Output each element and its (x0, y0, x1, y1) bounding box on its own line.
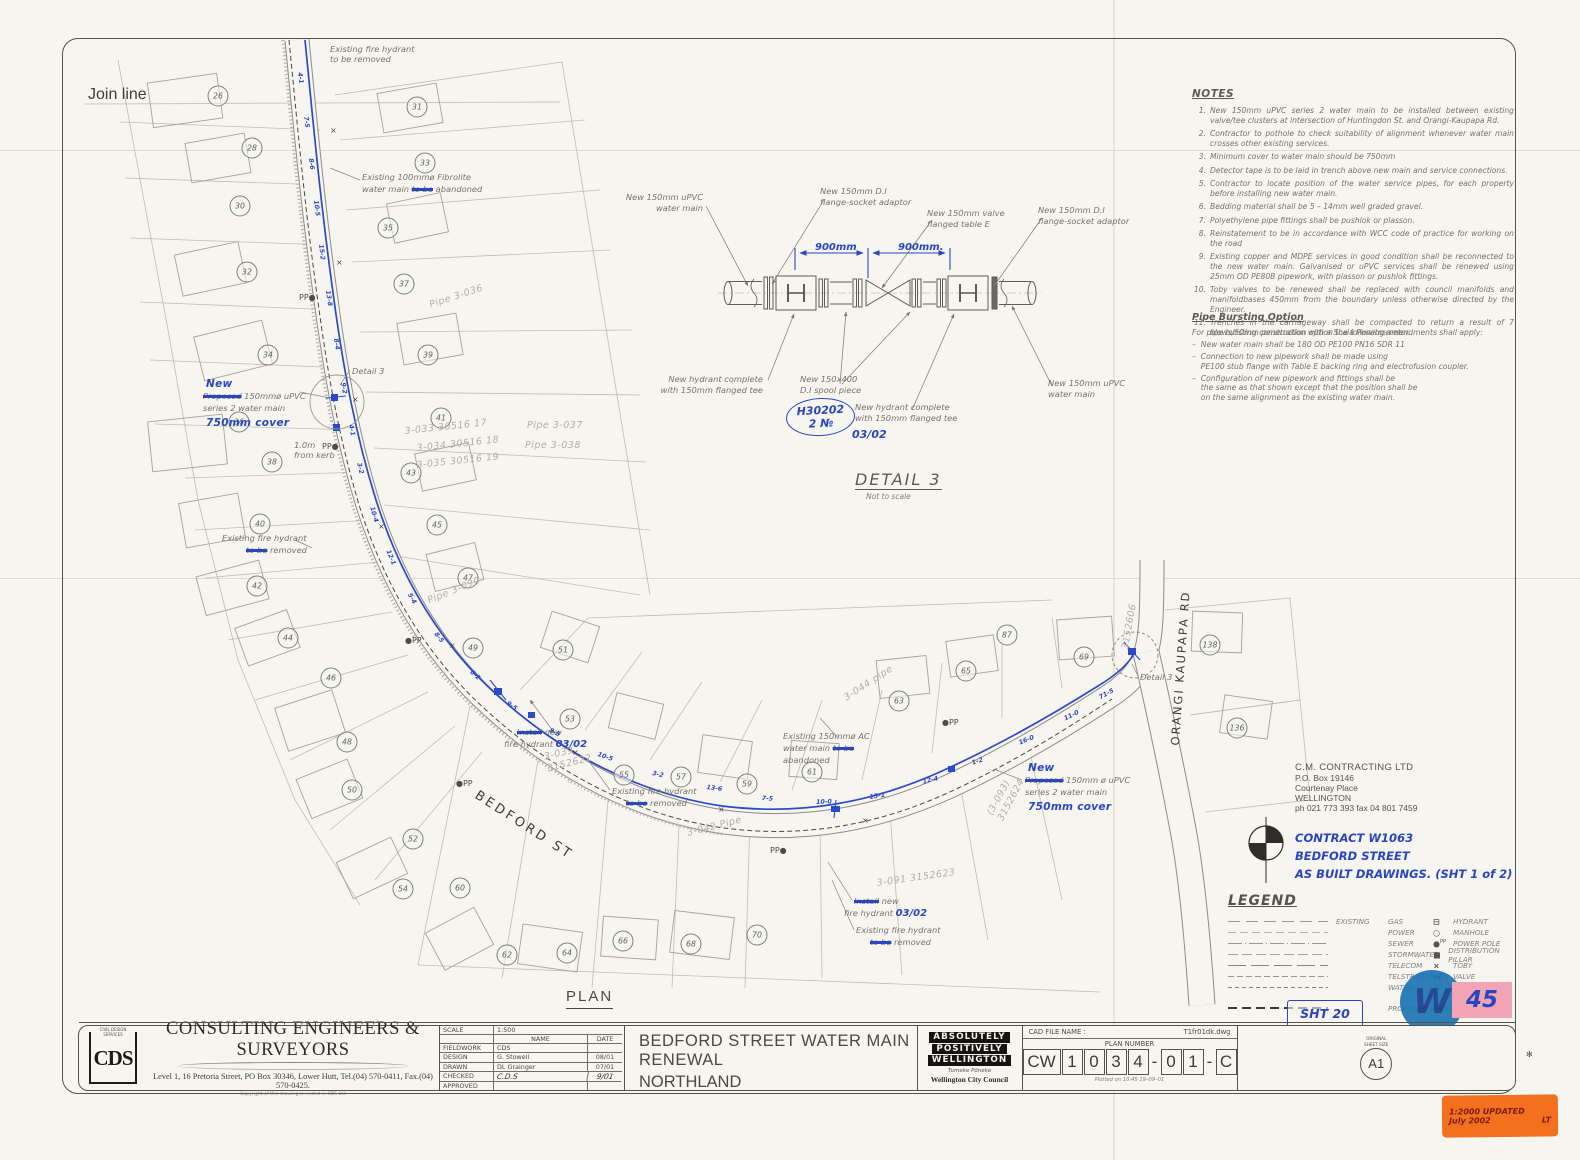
note-item: 7. Polyethylene pipe fittings shall be p… (1192, 216, 1514, 226)
plan-annotation: 3-042 Pipe (686, 814, 743, 839)
lot-number: 62 (497, 945, 518, 966)
utility-mark: × (449, 641, 456, 651)
lot-number: 54 (393, 879, 414, 900)
chainage-tick: 13-8 (323, 290, 333, 307)
note-item: 9. Existing copper and MDPE services in … (1192, 252, 1514, 282)
chainage-tick: 4-1 (295, 72, 304, 84)
chainage-tick: 7-5 (301, 116, 310, 128)
lot-number: 64 (557, 943, 578, 964)
contractor-street: Courtenay Place (1295, 783, 1515, 793)
chainage-tick: 9-5 (504, 700, 518, 713)
scale-label: SCALE (440, 1026, 494, 1035)
lot-number: 51 (553, 640, 574, 661)
detail3-handwritten: H30202 2 № (785, 396, 856, 438)
note-item: 4. Detector tape is to be laid in trench… (1192, 166, 1514, 176)
drawing-title-line1: BEDFORD STREET WATER MAIN RENEWAL (639, 1032, 917, 1070)
chainage-tick: 8-4 (331, 338, 341, 350)
legend-symbol-item: ⊟ HYDRANT (1433, 916, 1508, 927)
company-section: CIVIL DESIGN SERVICES CDS CONSULTING ENG… (79, 1026, 440, 1090)
note-item: 3. Minimum cover to water main should be… (1192, 152, 1514, 162)
detail3-label: New 150mm D.I flange-socket adaptor (1038, 205, 1129, 227)
detail3-handwritten: 900mm (815, 242, 857, 253)
lot-number: 87 (997, 625, 1018, 646)
plan-annotation: to be removed (246, 545, 307, 555)
legend-line-sample (1228, 965, 1328, 966)
detail3-label: New 150mm uPVC water main (626, 192, 703, 214)
chainage-tick: 3-2 (354, 462, 364, 475)
detail3-label: New hydrant complete with 150mm flanged … (855, 402, 957, 424)
lot-number: 38 (262, 452, 283, 473)
lot-number: 28 (242, 138, 263, 159)
copyright-note: Copyright of this drawing is vested in C… (147, 1092, 439, 1097)
plan-annotation: Pipe 3-038 (525, 440, 581, 452)
lot-number: 70 (747, 925, 768, 946)
detail3-label: New 150mm valve flanged table E (927, 208, 1005, 230)
lot-number: 44 (278, 628, 299, 649)
lot-number: 57 (671, 767, 692, 788)
plan-annotation: water main to be (783, 743, 854, 753)
plan-annotation: Proposed 150mmø uPVC (203, 391, 306, 401)
name-header: NAME (494, 1035, 588, 1044)
legend-symbol-item: ■ DISTRIBUTION PILLAR (1433, 949, 1508, 960)
legend-line-sample (1228, 954, 1328, 955)
lot-number: 31 (407, 97, 428, 118)
detail3-title: DETAIL 3 (855, 470, 942, 490)
plan-annotation: Detail 3 (1140, 672, 1172, 682)
lot-number: 65 (956, 661, 977, 682)
plan-annotation: 3-044 pipe (842, 663, 896, 704)
note-item: 10. Toby valves to be renewed shall be r… (1192, 285, 1514, 315)
chainage-tick: 10-0 (816, 798, 832, 806)
lot-number: 52 (403, 829, 424, 850)
plan-number-char: 0 (1084, 1049, 1105, 1075)
drawing-sheet: 2628303234363840424446485052546062646668… (0, 0, 1580, 1160)
detail3-label: New hydrant complete with 150mm flanged … (661, 374, 763, 396)
plan-number-char: 0 (1161, 1049, 1182, 1075)
chainage-tick: 4-1 (346, 424, 356, 437)
notes-list: 1. New 150mm uPVC series 2 water main to… (1192, 106, 1514, 338)
checked-signature: C.D.S (493, 1072, 589, 1082)
lot-number: 66 (613, 931, 634, 952)
contractor-city: WELLINGTON (1295, 793, 1515, 803)
plan-annotation: to be removed (626, 798, 687, 808)
lot-number: 34 (258, 345, 279, 366)
plan-annotation: Existing 150mmø AC (783, 731, 870, 741)
lot-number: 138 (1200, 635, 1221, 656)
notes-panel: NOTES 1. New 150mm uPVC series 2 water m… (1192, 88, 1514, 342)
plan-number-char: 3 (1106, 1049, 1127, 1075)
pipe-bursting-item: – New water main shall be 180 OD PE100 P… (1192, 340, 1514, 350)
company-name: CONSULTING ENGINEERS & SURVEYORS (147, 1019, 439, 1061)
detail3-label: New 150mm uPVC water main (1048, 378, 1125, 400)
chainage-tick: 13-6 (706, 784, 723, 794)
plan-annotation: Proposed 150mm ø uPVC (1025, 775, 1130, 785)
detail3-handwritten: 900mm. (898, 242, 944, 253)
plan-annotation: Existing fire hydrant to be removed (330, 44, 414, 65)
plan-annotation: series 2 water main (203, 403, 285, 413)
notes-title: NOTES (1192, 88, 1514, 100)
note-item: 1. New 150mm uPVC series 2 water main to… (1192, 106, 1514, 126)
chainage-tick: 1-2 (971, 756, 984, 767)
plan-annotation: water main to be abandoned (362, 184, 482, 194)
chainage-tick: 6-2 (468, 669, 482, 682)
pipe-bursting-list: – New water main shall be 180 OD PE100 P… (1192, 340, 1514, 403)
note-item: 2. Contractor to pothole to check suitab… (1192, 129, 1514, 149)
plan-annotation: New (206, 378, 233, 391)
contractor-pobox: P.O. Box 19146 (1295, 773, 1515, 783)
lot-number: 45 (427, 515, 448, 536)
lot-number: 42 (247, 576, 268, 597)
plan-number-section: CAD FILE NAME : T1fr01dk.dwg PLAN NUMBER… (1023, 1026, 1238, 1090)
title-block: CIVIL DESIGN SERVICES CDS CONSULTING ENG… (78, 1025, 1516, 1091)
chainage-tick: 5-4 (405, 592, 418, 606)
utility-mark: × (572, 748, 579, 758)
plan-annotation: Existing 100mmø Fibrolite (362, 172, 471, 182)
plan-annotation: Install new (854, 896, 899, 906)
chainage-tick: 7-5 (761, 795, 773, 804)
chainage-tick: 12-1 (384, 549, 397, 567)
chainage-tick: 16-0 (1018, 734, 1036, 747)
plan-annotation: fire hydrant 03/02 (844, 908, 927, 921)
cad-file-label: CAD FILE NAME : (1029, 1028, 1086, 1036)
utility-mark: PP● (322, 442, 339, 452)
legend-title: LEGEND (1228, 893, 1508, 909)
plan-annotation: 3152606 (1120, 603, 1140, 650)
utility-mark: × (352, 395, 359, 405)
plan-annotation: Pipe 3-036 (428, 283, 485, 312)
pipe-bursting-title: Pipe Bursting Option (1192, 312, 1514, 323)
utility-mark: × (718, 805, 725, 815)
lot-number: 26 (208, 86, 229, 107)
note-item: 8. Reinstatement to be in accordance wit… (1192, 229, 1514, 249)
chainage-tick: 11-0 (1063, 709, 1081, 723)
plan-annotation: series 2 water main (1025, 787, 1107, 797)
plan-annotation: Existing fire hydrant (856, 925, 940, 935)
utility-mark: ●PP (405, 636, 422, 646)
plan-annotation: Existing fire hydrant (222, 533, 306, 543)
pipe-bursting-item: – Connection to new pipework shall be ma… (1192, 352, 1514, 372)
plan-annotation: abandoned (783, 755, 830, 765)
lot-number: 55 (614, 765, 635, 786)
detail3-subtitle: Not to scale (866, 492, 911, 501)
utility-mark: × (378, 522, 385, 532)
lot-number: 63 (889, 691, 910, 712)
contractor-name: C.M. CONTRACTING LTD (1295, 762, 1515, 773)
lot-number: 50 (342, 780, 363, 801)
plan-number-label: PLAN NUMBER (1023, 1040, 1237, 1048)
plan-annotation: PLAN (566, 988, 613, 1009)
street-label: BEDFORD ST (471, 788, 576, 864)
date-header: DATE (588, 1035, 622, 1044)
highlight-45: 45 (1452, 982, 1512, 1018)
lot-number: 39 (418, 345, 439, 366)
lot-number: 35 (378, 218, 399, 239)
lot-number: 30 (230, 196, 251, 217)
chainage-tick: 10-4 (367, 506, 379, 523)
plan-annotation: to be removed (870, 937, 931, 947)
utility-mark: ●PP (942, 718, 959, 728)
lot-number: 33 (415, 153, 436, 174)
utility-mark: × (862, 816, 869, 826)
street-label: ORANGI KAUPAPA RD (1168, 590, 1193, 746)
lot-number: 40 (250, 514, 271, 535)
detail3-handwritten: 03/02 (852, 428, 887, 441)
chainage-tick: 10-5 (311, 200, 321, 217)
contract-handwritten-note: CONTRACT W1063 BEDFORD STREET AS BUILT D… (1295, 830, 1512, 883)
legend-line-sample (1228, 932, 1328, 933)
chainage-tick: 3-2 (651, 770, 664, 780)
plan-annotation: 750mm cover (1028, 801, 1111, 814)
plan-annotation: 3-035 30516 19 (416, 451, 500, 471)
scale-value: 1:500 (494, 1026, 622, 1035)
contractor-stamp: C.M. CONTRACTING LTD P.O. Box 19146 Cour… (1295, 762, 1515, 813)
plan-number-char: - (1205, 1050, 1215, 1074)
utility-mark: × (336, 258, 343, 268)
contractor-phone: ph 021 773 393 fax 04 801 7459 (1295, 803, 1515, 813)
chainage-tick: 10-5 (596, 751, 614, 764)
plan-annotation: 3-091 3152623 (876, 867, 956, 890)
lot-number: 68 (681, 934, 702, 955)
lot-number: 69 (1074, 647, 1095, 668)
plan-number-char: CW (1023, 1049, 1061, 1075)
chainage-tick: 12-4 (922, 775, 939, 786)
legend-line-sample (1228, 943, 1328, 944)
sheet-size-section: ORIGINAL SHEET SIZE A1 (1238, 1026, 1516, 1090)
plan-annotation: Detail 3 (352, 366, 384, 376)
plan-annotation: 750mm cover (206, 417, 289, 430)
detail3-label: New 150mm D.I flange-socket adaptor (820, 186, 911, 208)
sheet-size-badge: A1 (1360, 1048, 1392, 1080)
plan-number-char: 1 (1183, 1049, 1204, 1075)
chainage-tick: 71-5 (1098, 687, 1116, 702)
detail3-label: New 150x400 D.I spool piece (800, 374, 861, 396)
pipe-bursting-item: – Configuration of new pipework and fitt… (1192, 374, 1514, 404)
lot-number: 37 (394, 274, 415, 295)
company-address: Level 1, 16 Pretoria Street, PO Box 3034… (147, 1072, 439, 1090)
chainage-tick: 8-5 (432, 631, 445, 645)
logo-swoosh (177, 1062, 409, 1070)
note-item: 5. Contractor to locate position of the … (1192, 179, 1514, 199)
utility-mark: ●PP (456, 779, 473, 789)
plan-annotation: Pipe 3-090 (426, 575, 482, 607)
lot-number: 59 (737, 774, 758, 795)
chainage-tick: 15-1 (869, 792, 886, 802)
chainage-tick: 8-6 (306, 158, 315, 170)
utility-mark: PP● (770, 846, 787, 856)
drawing-title: BEDFORD STREET WATER MAIN RENEWAL NORTHL… (625, 1026, 918, 1090)
lot-number: 60 (450, 878, 471, 899)
chainage-tick: 9-2 (338, 382, 348, 395)
legend-existing-label: EXISTING (1336, 917, 1370, 926)
legend-symbol-item: ○ MANHOLE (1433, 927, 1508, 938)
cad-file-name: T1fr01dk.dwg (1184, 1028, 1231, 1036)
note-item: 6. Bedding material shall be 5 – 14mm we… (1192, 202, 1514, 212)
plan-number: CW 1 0 3 4 - 0 1 - C (1023, 1049, 1237, 1075)
scale-table: SCALE 1:500 NAME DATE FIELDWORK CDS DESI… (440, 1026, 625, 1090)
pipe-bursting-panel: Pipe Bursting Option For pipe bursting c… (1192, 312, 1514, 405)
plan-number-char: - (1150, 1050, 1160, 1074)
lot-number: 32 (237, 262, 258, 283)
legend-line-sample (1228, 921, 1328, 922)
plan-number-char: 1 (1062, 1049, 1083, 1075)
utility-mark: PP● (299, 293, 316, 303)
lot-number: 53 (560, 709, 581, 730)
cds-logo: CIVIL DESIGN SERVICES CDS (89, 1032, 137, 1084)
council-logo: ABSOLUTELY POSITIVELY WELLINGTON Tumeke … (918, 1026, 1023, 1090)
lot-number: 48 (337, 732, 358, 753)
utility-mark: × (330, 126, 337, 136)
legend-line-sample (1228, 987, 1328, 988)
lot-number: 136 (1227, 718, 1248, 739)
lot-number: 46 (321, 668, 342, 689)
plotted-stamp: Plotted on 10:45 19–09–01 (1023, 1077, 1237, 1083)
pipe-bursting-intro: For pipe bursting construction option th… (1192, 328, 1514, 337)
drawing-title-line2: NORTHLAND (639, 1073, 917, 1092)
plan-annotation: Join line (88, 85, 147, 105)
plan-annotation: New (1028, 762, 1055, 775)
sticky-note: 1:2000 UPDATED July 2002 LT (1442, 1094, 1558, 1137)
plan-annotation: ✻ (1526, 1050, 1533, 1060)
plan-annotation: Pipe 3-037 (527, 420, 583, 432)
legend-line-sample (1228, 976, 1328, 977)
plan-number-char: C (1216, 1049, 1237, 1075)
plan-number-char: 4 (1128, 1049, 1149, 1075)
plan-annotation: (3-093) 3152624 (985, 772, 1027, 824)
chainage-tick: 15-2 (316, 244, 326, 261)
lot-number: 49 (463, 638, 484, 659)
plan-annotation: Existing fire hydrant (612, 786, 696, 796)
